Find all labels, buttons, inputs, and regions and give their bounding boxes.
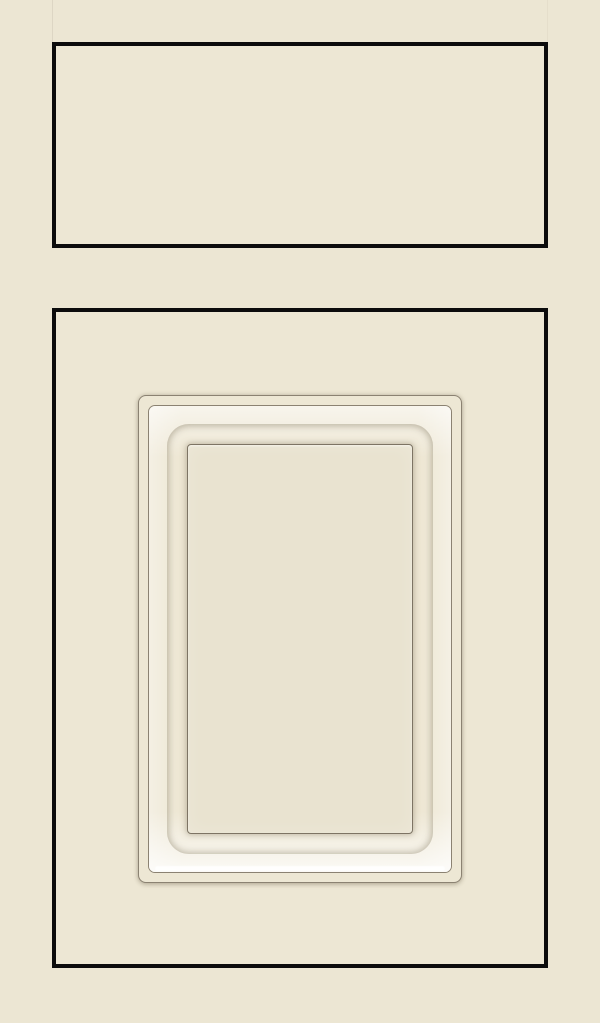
cabinet-door-sample-photo [0, 0, 600, 1023]
panel-molding [148, 405, 452, 873]
panel-center-field [187, 444, 413, 834]
background-seam-left [52, 0, 53, 42]
drawer-front [52, 42, 548, 248]
background-seam-right [547, 0, 548, 42]
door-front [52, 308, 548, 968]
raised-panel [138, 395, 462, 883]
